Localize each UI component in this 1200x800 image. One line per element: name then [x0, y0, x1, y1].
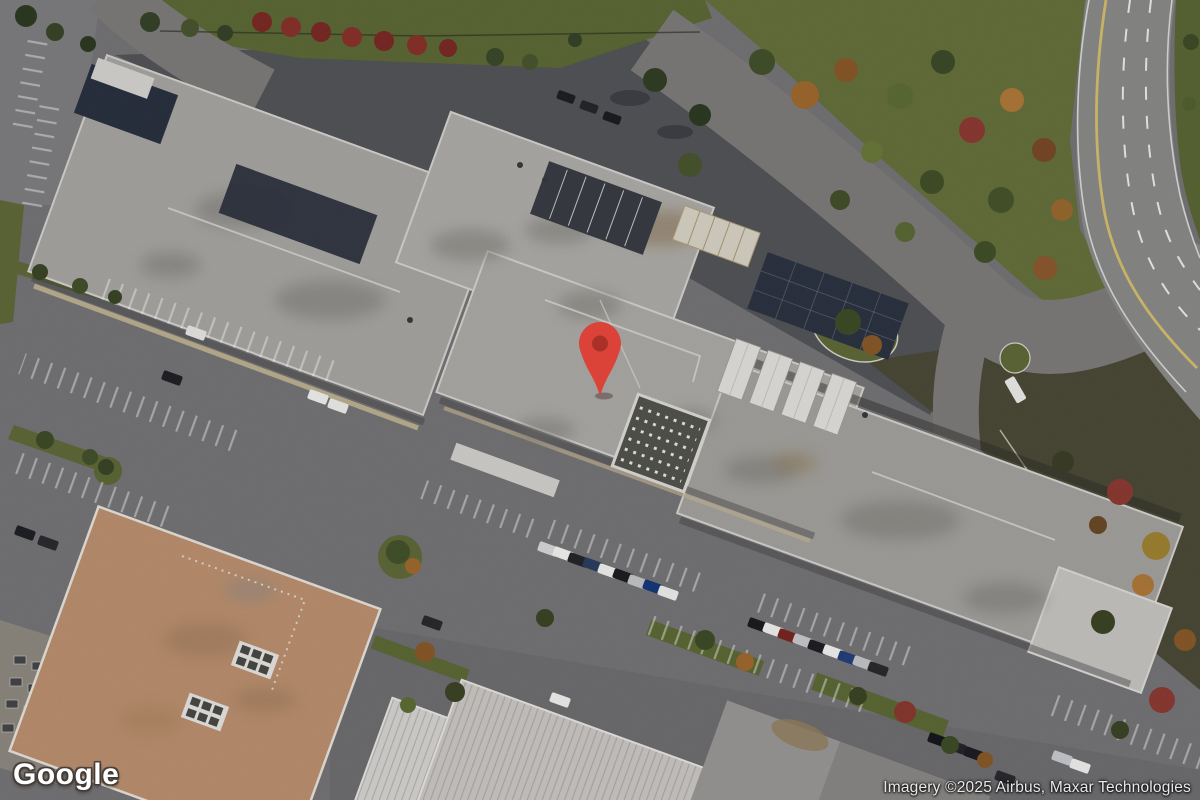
google-logo[interactable]: Google — [13, 758, 119, 792]
map-attribution: Imagery ©2025 Airbus, Maxar Technologies — [883, 779, 1191, 797]
map-canvas[interactable]: Google Imagery ©2025 Airbus, Maxar Techn… — [0, 0, 1200, 800]
satellite-imagery — [0, 0, 1200, 800]
map-pin-inner-dot — [592, 336, 608, 352]
map-pin-shadow — [595, 393, 613, 400]
photo-grain — [0, 0, 1200, 800]
